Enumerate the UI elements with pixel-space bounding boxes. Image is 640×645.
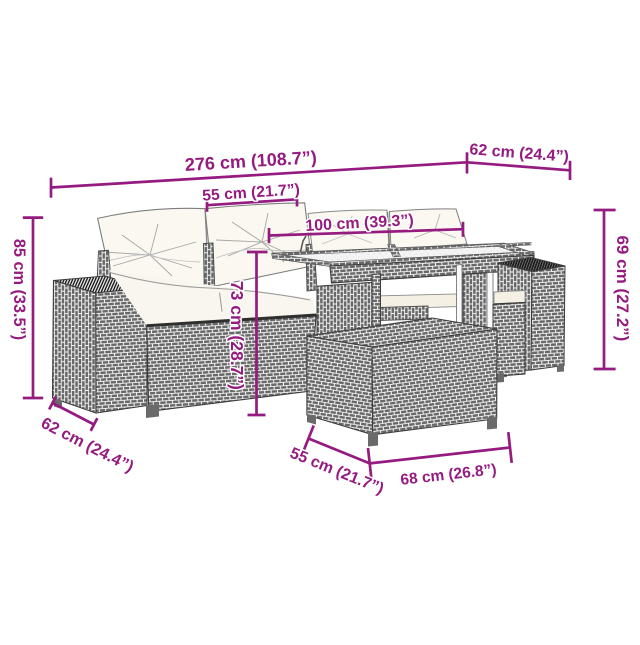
svg-text:69 cm (27.2”): 69 cm (27.2”) (613, 235, 632, 341)
svg-text:85 cm (33.5”): 85 cm (33.5”) (10, 239, 28, 340)
svg-text:276 cm (108.7”): 276 cm (108.7”) (184, 147, 317, 175)
svg-text:68 cm (26.8”): 68 cm (26.8”) (400, 461, 498, 489)
svg-text:62 cm (24.4”): 62 cm (24.4”) (469, 141, 570, 165)
svg-text:62 cm (24.4”): 62 cm (24.4”) (38, 414, 136, 476)
svg-text:73 cm (28.7”): 73 cm (28.7”) (227, 281, 247, 390)
